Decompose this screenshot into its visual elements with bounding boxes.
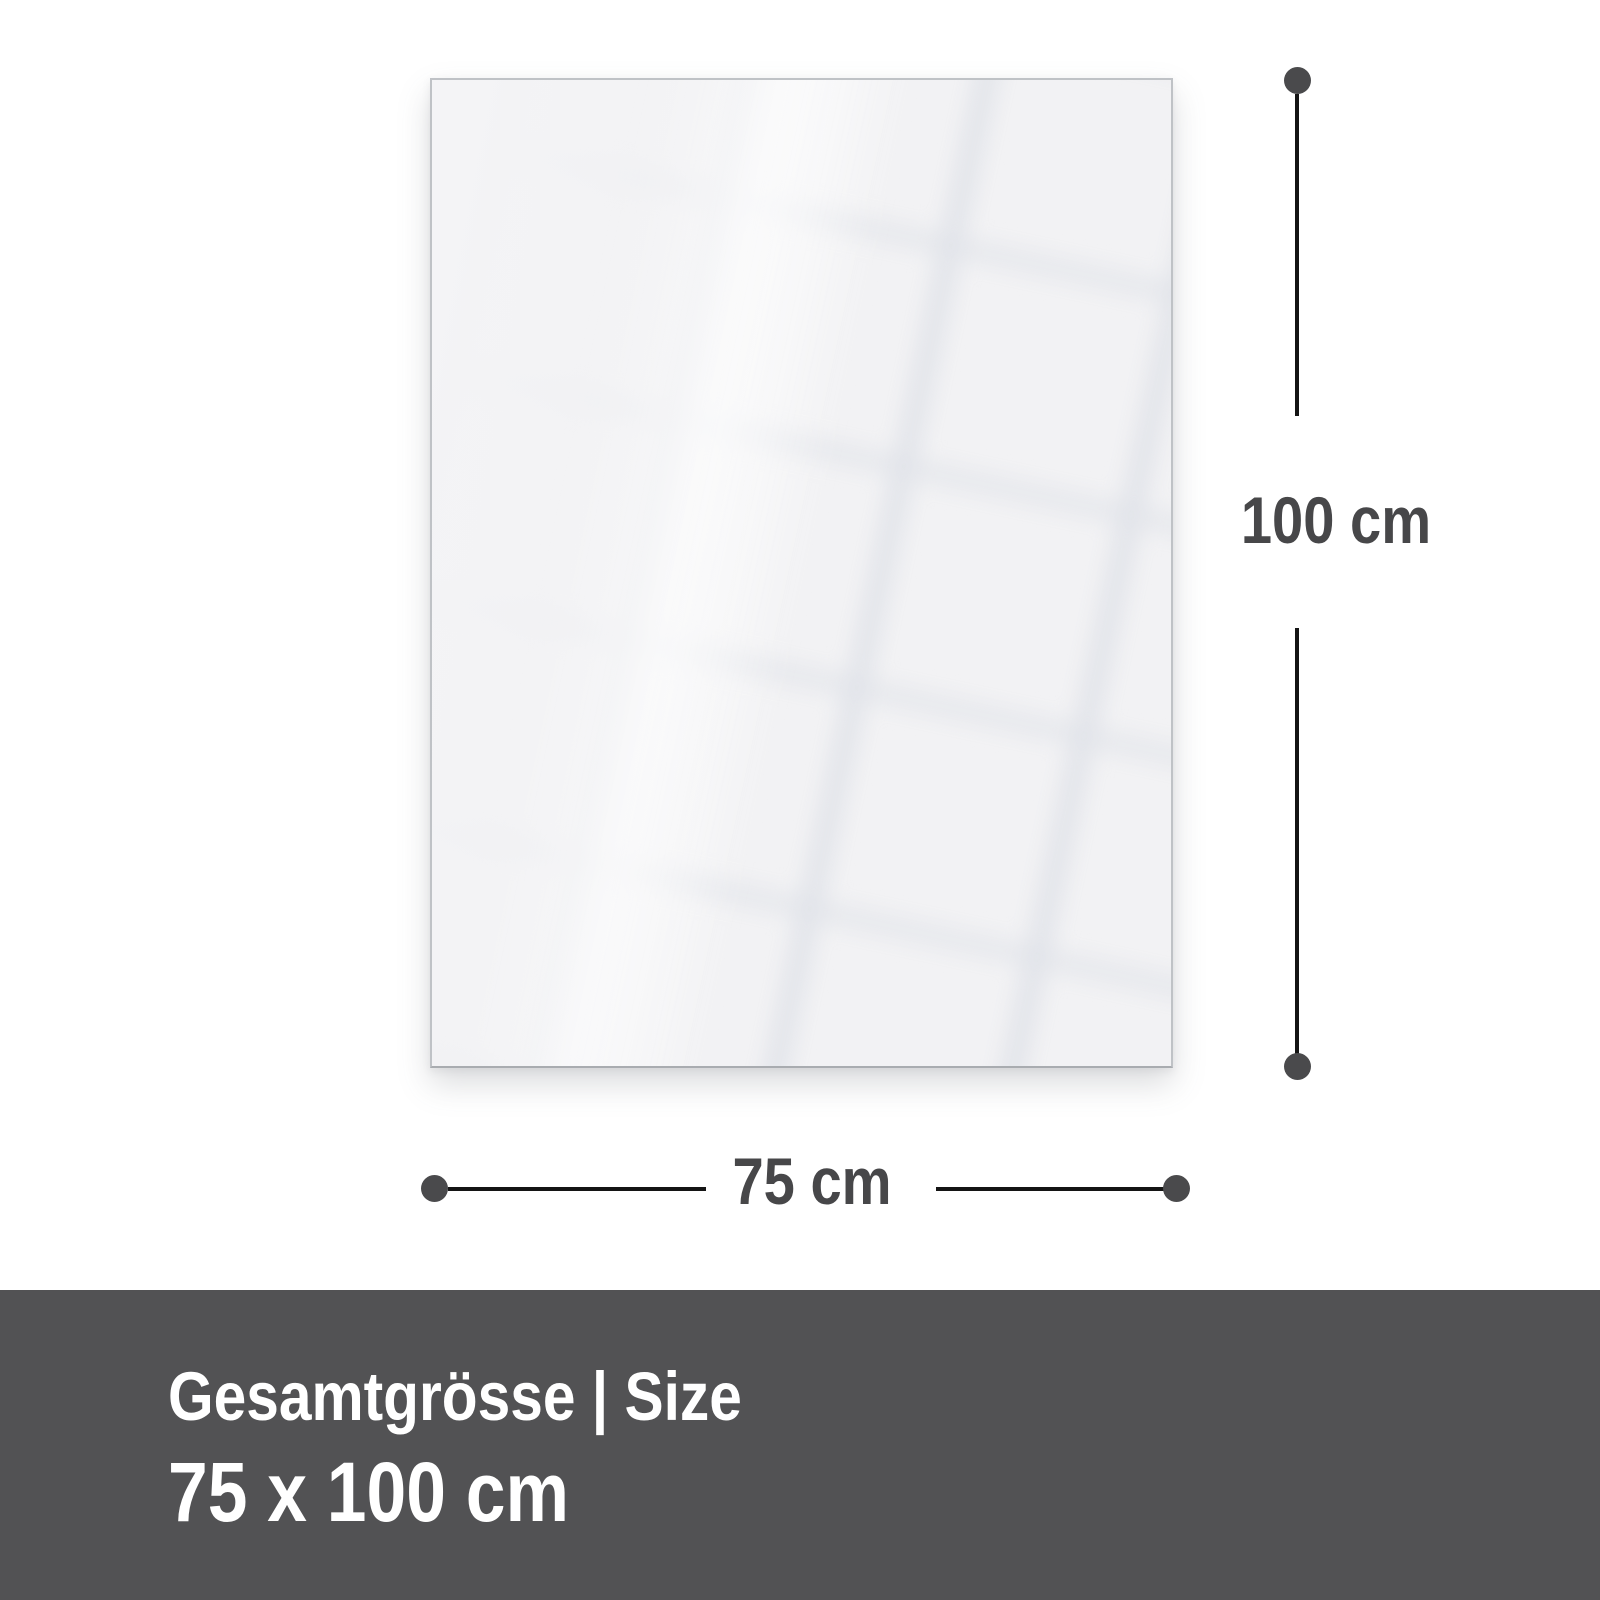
height-dimension-line-upper: [1295, 94, 1299, 416]
width-dimension-right-dot-icon: [1163, 1175, 1190, 1202]
glass-panel-preview: [430, 78, 1173, 1068]
height-dimension-bottom-dot-icon: [1284, 1053, 1311, 1080]
height-dimension-top-dot-icon: [1284, 67, 1311, 94]
height-dimension-label: 100 cm: [1241, 487, 1431, 553]
width-dimension-left-dot-icon: [421, 1175, 448, 1202]
height-dimension-line-lower: [1295, 628, 1299, 1055]
width-dimension-line-left: [448, 1187, 706, 1191]
width-dimension-label: 75 cm: [732, 1148, 891, 1214]
product-size-diagram: 100 cm 75 cm Gesamtgrösse | Size 75 x 10…: [0, 0, 1600, 1600]
size-banner-title: Gesamtgrösse | Size: [168, 1362, 742, 1431]
panel-left-highlight: [432, 80, 1171, 1066]
size-banner-value: 75 x 100 cm: [168, 1450, 569, 1534]
width-dimension-line-right: [936, 1187, 1165, 1191]
